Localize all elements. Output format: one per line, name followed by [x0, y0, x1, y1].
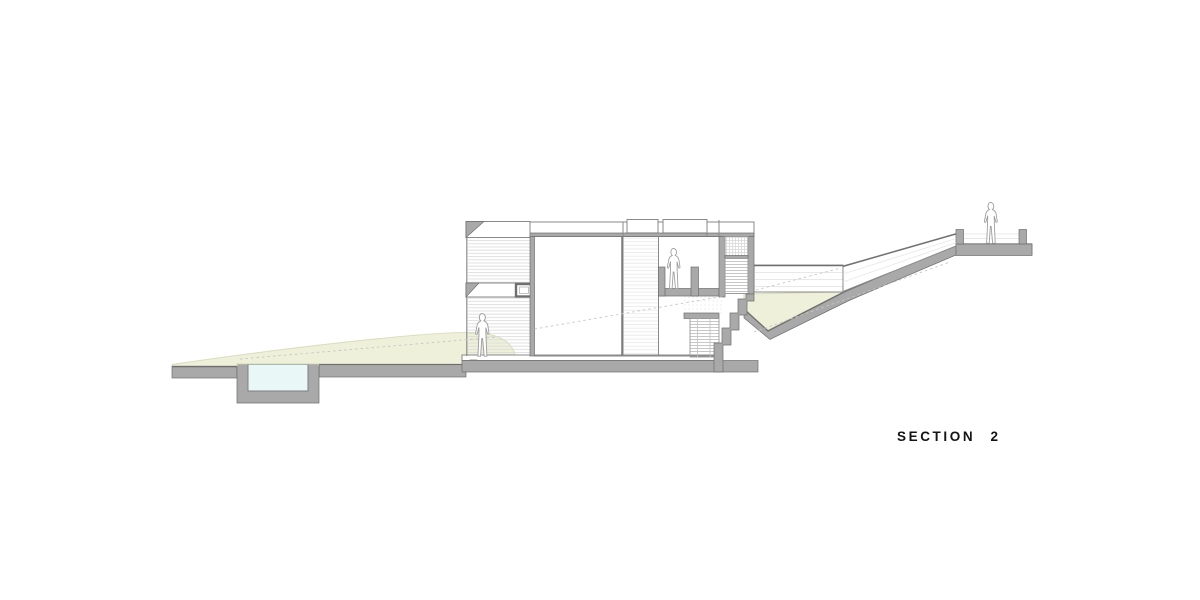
covered-porch: [466, 222, 533, 357]
pool-water: [248, 365, 308, 392]
balcony-upstand-left: [659, 267, 666, 296]
roof-curb-2: [663, 220, 707, 234]
pool: [237, 363, 319, 403]
section-drawing: [0, 0, 1200, 600]
balcony-upstand-right: [691, 267, 699, 296]
mesh-guard-panel: [725, 237, 748, 258]
house-base: [462, 355, 758, 372]
terrace-parapet-stub-right: [1019, 230, 1027, 245]
person-figure-balcony: [667, 248, 680, 288]
partition-siding: [623, 237, 658, 357]
room-left-wall: [530, 237, 535, 357]
upper-stair-flight: [725, 259, 748, 294]
stair-landing-edge: [684, 313, 719, 319]
foundation-slab: [462, 361, 758, 373]
tower-left-wall: [719, 237, 725, 298]
walkway-parapet: [754, 265, 843, 292]
stair-tower: [684, 237, 754, 358]
slab-right-of-pool: [319, 364, 466, 377]
terrace-slab: [956, 244, 1032, 256]
balcony-recess: [659, 267, 720, 296]
balcony-floor: [659, 289, 720, 297]
person-figure-terrace: [984, 202, 997, 243]
partition-band: [623, 237, 659, 357]
hidden-stair-dots: [684, 296, 722, 314]
terrace-parapet-stub-left: [956, 230, 964, 245]
section-drawing-page: SECTION 2: [0, 0, 1200, 600]
house-section: [466, 220, 754, 373]
tower-right-wall: [748, 237, 754, 295]
walkway-wall: [754, 265, 843, 292]
section-title: SECTION 2: [897, 429, 1037, 444]
roof-curb-1: [627, 220, 658, 234]
slab-left-of-pool: [172, 366, 237, 378]
